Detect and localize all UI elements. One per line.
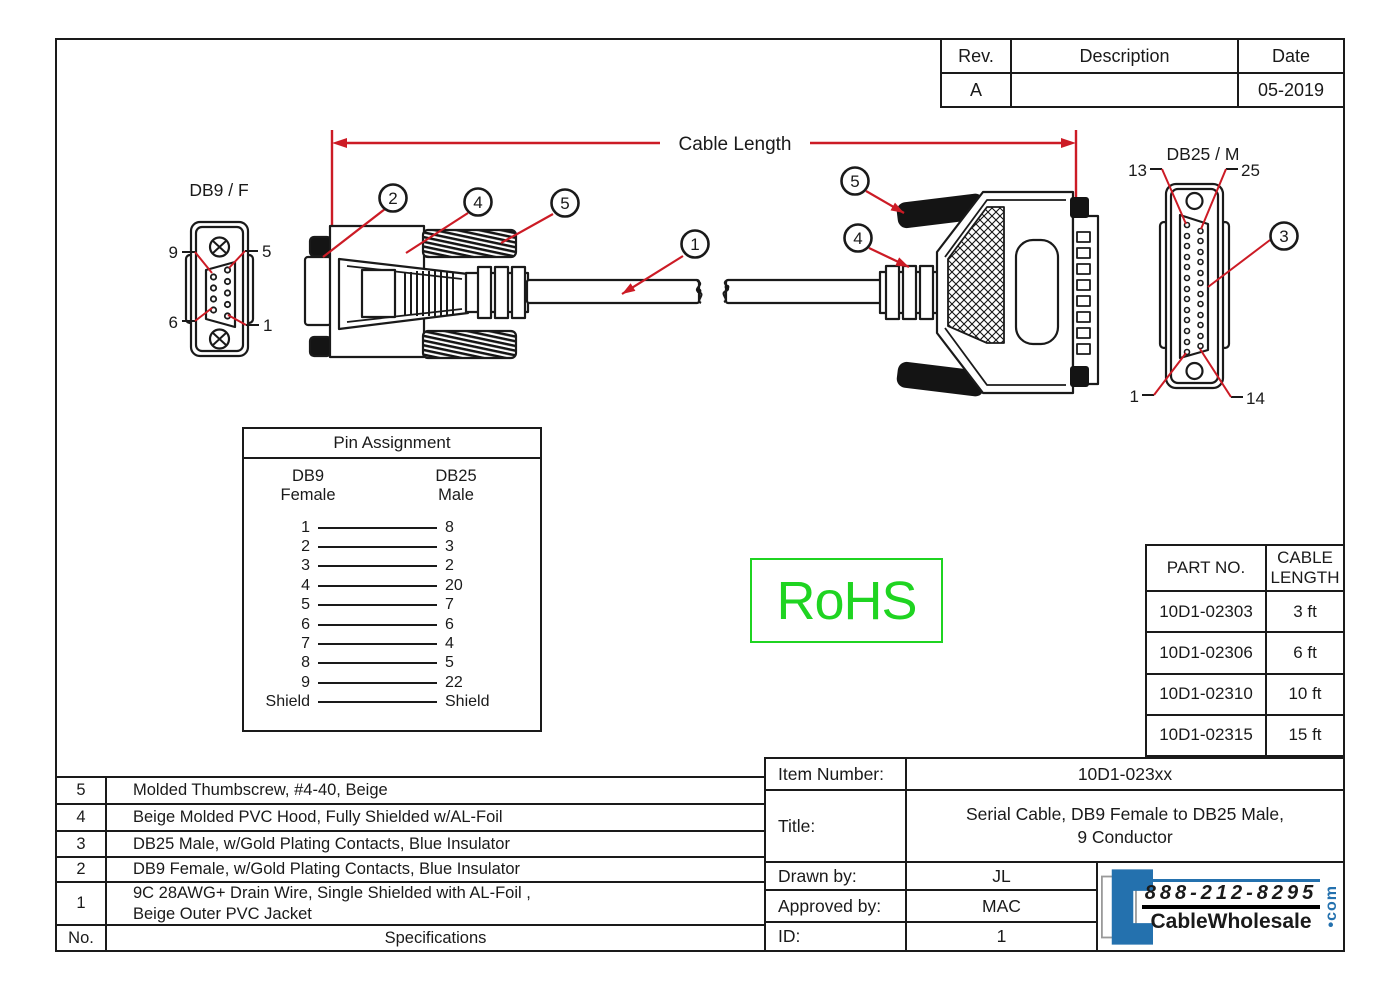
rev-value: A: [942, 74, 1010, 106]
drawn-by-value: JL: [907, 863, 1096, 889]
db25-front-screwhole-bottom: [1187, 363, 1203, 379]
pin-row: 32: [244, 557, 540, 576]
logo-name: CableWholesale: [1150, 910, 1311, 934]
strain-ring: [903, 266, 916, 319]
logo-dot: •: [1323, 921, 1340, 928]
db9-hood-taper: [339, 259, 468, 329]
specifications-table: 5 Molded Thumbscrew, #4-40, Beige 4 Beig…: [55, 776, 766, 952]
spec-footer-title: Specifications: [107, 926, 764, 950]
db9-pin1-label: 1: [263, 316, 272, 335]
db9-side-view: [305, 226, 701, 358]
wire-line: [318, 604, 437, 606]
callout-5-label: 5: [560, 194, 569, 213]
pin-row: 85: [244, 654, 540, 673]
spec-text: 9C 28AWG+ Drain Wire, Single Shielded wi…: [107, 883, 764, 924]
id-value: 1: [907, 923, 1096, 950]
wire-line: [318, 546, 437, 548]
db25-hood-window: [1016, 240, 1058, 344]
pin-row: 66: [244, 615, 540, 634]
callout-5-right-label: 5: [850, 172, 859, 191]
callout-3-label: 3: [1279, 227, 1288, 246]
cable-length-value: 15 ft: [1267, 716, 1343, 755]
pin-assignment-headers: DB9 Female DB25 Male: [244, 467, 540, 506]
db25-front-label: DB25 / M: [1167, 144, 1240, 164]
spec-no: 5: [57, 778, 105, 803]
cable-length-value: 6 ft: [1267, 633, 1343, 672]
thumbscrew-bottom: [423, 331, 516, 358]
part-no-value: 10D1-02306: [1147, 633, 1265, 672]
db9-screw-nub-bottom: [310, 337, 331, 356]
pin-row: 23: [244, 537, 540, 556]
revision-table: Rev. Description Date A 05-2019: [940, 38, 1345, 108]
strain-ring: [478, 267, 491, 318]
wire-line: [318, 662, 437, 664]
callout-4-label: 4: [473, 193, 482, 212]
cable-length-header: CABLE LENGTH: [1267, 546, 1343, 590]
pin-row: 74: [244, 634, 540, 653]
spec-no: 3: [57, 832, 105, 856]
part-number-table: PART NO. CABLE LENGTH 10D1-02303 3 ft 10…: [1145, 544, 1345, 757]
db25-male-header: DB25 Male: [372, 467, 540, 506]
drawn-by-label: Drawn by:: [766, 863, 905, 889]
spec-text: DB25 Male, w/Gold Plating Contacts, Blue…: [107, 832, 764, 856]
db25-pin14-label: 14: [1246, 389, 1265, 408]
logo-domain: •com: [1324, 885, 1340, 928]
rohs-badge: RoHS: [750, 558, 943, 643]
cable-break-dot: [725, 285, 730, 290]
db25-pin1-label: 1: [1130, 387, 1139, 406]
pin-row: 420: [244, 576, 540, 595]
part-no-header: PART NO.: [1147, 546, 1265, 590]
db25-front-screwhole-top: [1187, 193, 1203, 209]
date-header: Date: [1239, 40, 1343, 72]
item-number-value: 10D1-023xx: [907, 759, 1343, 789]
db9-pin6-label: 6: [169, 313, 178, 332]
cable-break-dot: [697, 289, 702, 294]
part-no-value: 10D1-02315: [1147, 716, 1265, 755]
pin-assignment-title: Pin Assignment: [244, 429, 540, 459]
id-label: ID:: [766, 923, 905, 950]
dimension-arrow-left: [332, 138, 347, 148]
db25-pin13-label: 13: [1128, 161, 1147, 180]
wire-line: [318, 565, 437, 567]
title-label: Title:: [766, 791, 905, 861]
spec-no: 4: [57, 805, 105, 830]
spec-no: 2: [57, 858, 105, 881]
title-value: Serial Cable, DB9 Female to DB25 Male, 9…: [907, 791, 1343, 861]
cable-right: [724, 280, 884, 303]
db9-flange: [305, 257, 331, 325]
part-no-value: 10D1-02310: [1147, 675, 1265, 714]
spec-no: 1: [57, 883, 105, 924]
rev-header: Rev.: [942, 40, 1010, 72]
cable-length-value: 10 ft: [1267, 675, 1343, 714]
callout-1-label: 1: [690, 235, 699, 254]
wire-line: [318, 624, 437, 626]
wire-line: [318, 585, 437, 587]
cable-right-segment: [726, 280, 884, 303]
callout-2-label: 2: [388, 189, 397, 208]
approved-by-value: MAC: [907, 891, 1096, 921]
part-no-value: 10D1-02303: [1147, 592, 1265, 631]
strain-ring: [920, 266, 933, 319]
db25-screw-tip-top: [1070, 197, 1089, 218]
pin-assignment-table: Pin Assignment DB9 Female DB25 Male 18 2…: [242, 427, 542, 732]
pin-row: 57: [244, 596, 540, 615]
strain-ring: [512, 267, 525, 318]
logo-phone: 888-212-8295: [1142, 879, 1321, 909]
db9-front-view: [186, 222, 253, 356]
cable-length-value: 3 ft: [1267, 592, 1343, 631]
logo-cell: 888-212-8295 CableWholesale •com: [1098, 863, 1343, 950]
spec-text: Beige Molded PVC Hood, Fully Shielded w/…: [107, 805, 764, 830]
spec-text: DB9 Female, w/Gold Plating Contacts, Blu…: [107, 858, 764, 881]
db25-side-view: [880, 192, 1098, 397]
db9-female-header: DB9 Female: [244, 467, 372, 506]
db25-pin25-label: 25: [1241, 161, 1260, 180]
cablewholesale-logo: 888-212-8295 CableWholesale •com: [1101, 867, 1341, 947]
db25-screw-tip-bottom: [1070, 366, 1089, 387]
db9-pin5-label: 5: [262, 242, 271, 261]
wire-line: [318, 682, 437, 684]
title-block: Item Number: 10D1-023xx Title: Serial Ca…: [764, 757, 1345, 952]
pin-row: 922: [244, 673, 540, 692]
wire-line: [318, 527, 437, 529]
wire-line: [318, 643, 437, 645]
db9-hood-window: [362, 270, 395, 317]
cable-length-label: Cable Length: [678, 134, 791, 155]
pin-mapping-rows: 18 23 32 420 57 66 74 85 922 ShieldShiel…: [244, 518, 540, 712]
db9-front-label: DB9 / F: [189, 180, 248, 200]
db25-front-view: [1160, 184, 1229, 388]
wire-line: [318, 701, 437, 703]
pin-row: ShieldShield: [244, 692, 540, 711]
date-value: 05-2019: [1239, 74, 1343, 106]
description-value: [1012, 74, 1237, 106]
cable-left-segment: [527, 280, 699, 303]
db9-pin9-label: 9: [169, 243, 178, 262]
description-header: Description: [1012, 40, 1237, 72]
spec-text: Molded Thumbscrew, #4-40, Beige: [107, 778, 764, 803]
pin-row: 18: [244, 518, 540, 537]
dimension-arrow-right: [1061, 138, 1076, 148]
strain-ring: [886, 266, 899, 319]
item-number-label: Item Number:: [766, 759, 905, 789]
callout-4-right-label: 4: [853, 229, 862, 248]
spec-footer-no: No.: [57, 926, 105, 950]
strain-ring: [495, 267, 508, 318]
approved-by-label: Approved by:: [766, 891, 905, 921]
